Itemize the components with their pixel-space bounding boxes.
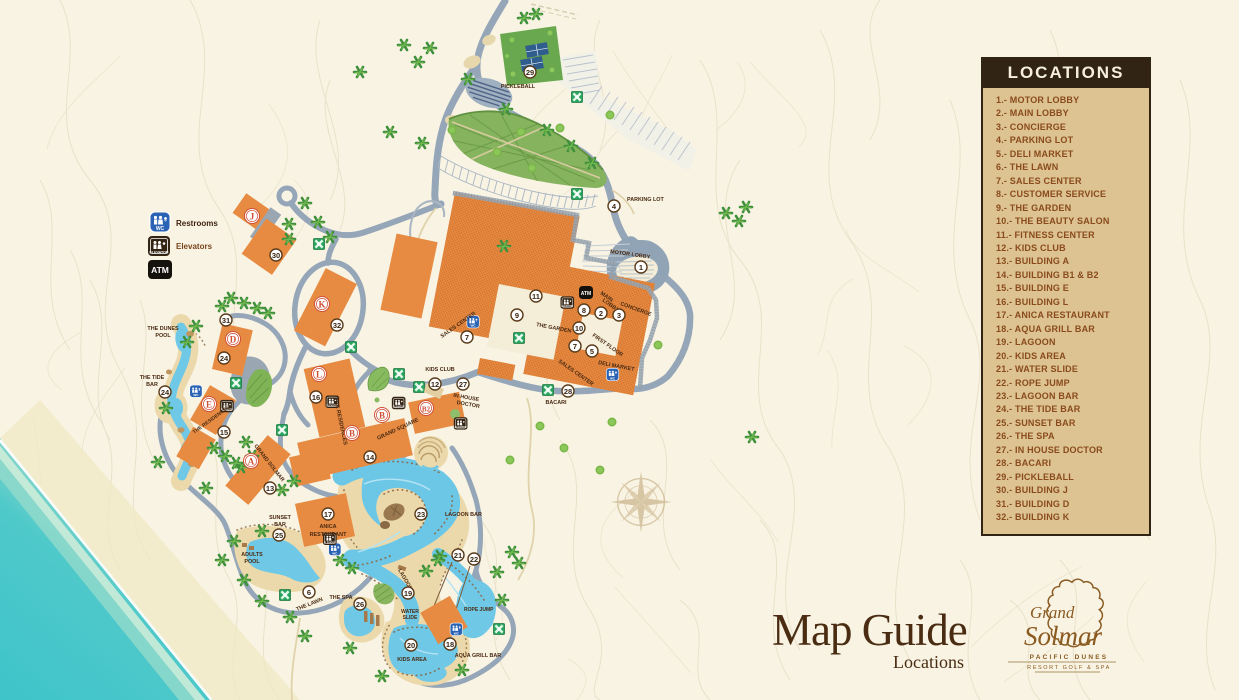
svg-text:12: 12 <box>431 380 439 389</box>
svg-text:Grand: Grand <box>1030 603 1075 622</box>
svg-text:LAGOON BAR: LAGOON BAR <box>445 512 482 518</box>
svg-text:E: E <box>206 400 212 410</box>
svg-text:10: 10 <box>575 324 583 333</box>
svg-text:KIDS CLUB: KIDS CLUB <box>425 367 454 373</box>
svg-text:KIDS AREA: KIDS AREA <box>397 657 427 663</box>
svg-text:5: 5 <box>590 347 594 356</box>
svg-text:3: 3 <box>617 311 621 320</box>
svg-text:B: B <box>379 411 385 421</box>
svg-text:24: 24 <box>220 354 229 363</box>
svg-text:ANICA: ANICA <box>319 524 336 530</box>
svg-text:BAR: BAR <box>146 382 158 388</box>
svg-text:11: 11 <box>532 292 540 301</box>
svg-text:THE TIDE: THE TIDE <box>140 375 165 381</box>
svg-text:25: 25 <box>275 531 283 540</box>
svg-text:22: 22 <box>470 555 478 564</box>
svg-text:AQUA GRILL BAR: AQUA GRILL BAR <box>455 653 502 659</box>
svg-text:18: 18 <box>446 640 454 649</box>
svg-text:17: 17 <box>324 510 332 519</box>
svg-text:30: 30 <box>272 251 280 260</box>
svg-text:Elevators: Elevators <box>176 242 213 251</box>
svg-text:THE SPA: THE SPA <box>330 595 353 601</box>
svg-text:SLIDE: SLIDE <box>403 615 418 621</box>
svg-text:7: 7 <box>465 333 469 342</box>
svg-text:ROPE JUMP: ROPE JUMP <box>464 607 494 613</box>
svg-text:26: 26 <box>356 600 364 609</box>
svg-text:K: K <box>318 300 325 310</box>
svg-text:RESORT GOLF & SPA: RESORT GOLF & SPA <box>1027 665 1111 671</box>
svg-text:ATM: ATM <box>151 265 169 275</box>
svg-text:A: A <box>248 457 255 467</box>
svg-text:9: 9 <box>515 311 519 320</box>
svg-text:BACARI: BACARI <box>546 400 567 406</box>
svg-text:L: L <box>316 370 322 380</box>
svg-text:PARKING LOT: PARKING LOT <box>627 197 664 203</box>
svg-text:2: 2 <box>599 309 603 318</box>
svg-text:14: 14 <box>366 453 375 462</box>
svg-text:7: 7 <box>573 342 577 351</box>
svg-text:PACIFIC DUNES: PACIFIC DUNES <box>1030 654 1109 661</box>
svg-text:B2: B2 <box>422 406 431 414</box>
svg-text:13: 13 <box>266 484 274 493</box>
svg-text:BAR: BAR <box>274 522 286 528</box>
svg-text:PICKLEBALL: PICKLEBALL <box>501 84 536 90</box>
svg-text:21: 21 <box>454 551 462 560</box>
svg-text:ATM: ATM <box>581 291 591 297</box>
svg-text:D: D <box>230 335 237 345</box>
svg-text:Restrooms: Restrooms <box>176 219 218 228</box>
svg-text:SUNSET: SUNSET <box>269 515 292 521</box>
svg-text:20: 20 <box>407 641 415 650</box>
svg-text:1: 1 <box>639 263 643 272</box>
svg-text:16: 16 <box>312 393 320 402</box>
svg-text:8: 8 <box>582 306 586 315</box>
svg-text:31: 31 <box>222 316 230 325</box>
svg-text:Solmar: Solmar <box>1024 621 1103 651</box>
svg-text:23: 23 <box>417 510 425 519</box>
svg-text:27: 27 <box>459 380 467 389</box>
svg-text:29: 29 <box>526 68 534 77</box>
svg-text:POOL: POOL <box>155 333 171 339</box>
svg-text:POOL: POOL <box>244 559 260 565</box>
svg-text:B: B <box>349 429 355 439</box>
svg-text:24: 24 <box>161 388 170 397</box>
svg-text:RESTAURANT: RESTAURANT <box>310 532 347 538</box>
svg-text:6: 6 <box>307 588 311 597</box>
svg-text:15: 15 <box>220 428 228 437</box>
svg-text:19: 19 <box>404 589 412 598</box>
svg-text:J: J <box>250 212 255 222</box>
svg-text:32: 32 <box>333 321 341 330</box>
svg-text:ADULTS: ADULTS <box>241 552 263 558</box>
svg-text:THE DUNES: THE DUNES <box>147 326 179 332</box>
svg-text:28: 28 <box>564 387 572 396</box>
